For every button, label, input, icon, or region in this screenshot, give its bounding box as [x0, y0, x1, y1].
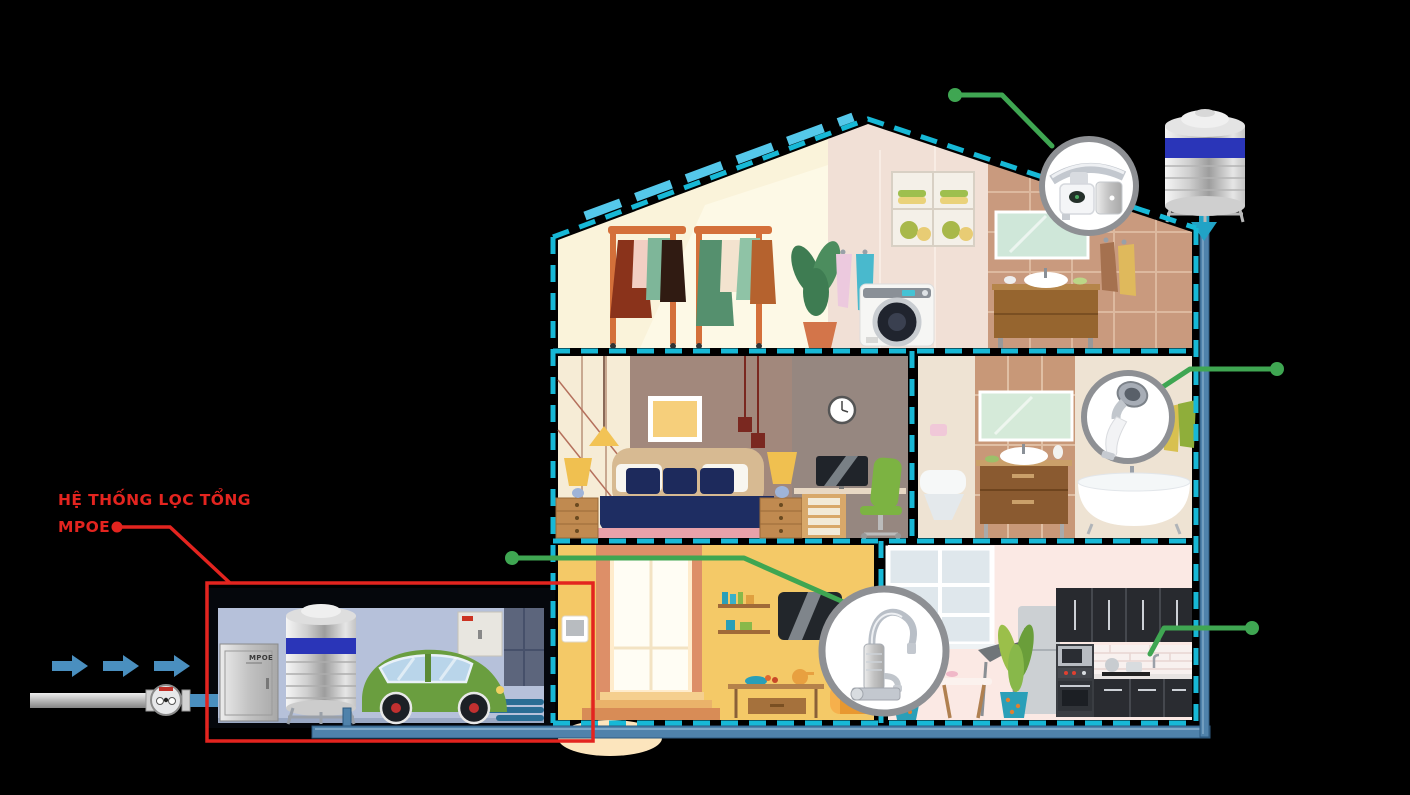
tap-filter-inset — [1042, 139, 1136, 233]
cabinet-label: MPOE — [249, 654, 273, 662]
inlet-pipe — [30, 693, 148, 708]
pot — [1126, 662, 1142, 672]
kitchen-cabinets — [1056, 588, 1192, 717]
car-headlight — [496, 686, 504, 694]
annotation-leader-line — [117, 527, 230, 583]
teapot — [792, 669, 808, 685]
rooftop-water-tank — [1165, 109, 1245, 222]
kettle — [1105, 658, 1119, 672]
toilet-paper — [930, 424, 947, 436]
garage-lockers — [504, 608, 544, 686]
bottom-pipe — [312, 726, 1210, 738]
callout-line-tap-filter — [955, 95, 1052, 146]
shower-filter-inset — [1084, 373, 1172, 465]
dining-table — [938, 678, 992, 685]
bathroom-vanity — [976, 444, 1072, 538]
riser-pipe — [1200, 205, 1209, 737]
diagram-canvas: MPOE — [0, 0, 1410, 795]
bedroom — [556, 356, 908, 539]
mpoe-filter-cabinet: MPOE — [220, 644, 278, 721]
annotation-line2: MPOE — [58, 518, 110, 536]
garage: MPOE — [205, 588, 555, 728]
water-inlet-arrows — [52, 655, 190, 677]
garage-wall-box — [458, 612, 502, 656]
mirror — [980, 392, 1072, 440]
tank-band — [1165, 138, 1245, 158]
towel — [1118, 244, 1136, 296]
water-inlet — [30, 655, 218, 715]
house-cutaway-diagram: MPOE — [0, 0, 1410, 795]
garage-water-tank — [286, 604, 356, 724]
annotation-line1: HỆ THỐNG LỌC TỔNG — [58, 487, 251, 509]
washing-machine — [860, 284, 934, 346]
bed — [598, 448, 776, 538]
towel-shelf — [892, 172, 974, 246]
towel — [1178, 400, 1196, 448]
thermostat — [562, 616, 588, 642]
inlet-connector — [190, 694, 218, 707]
cooktop — [1102, 672, 1150, 676]
water-meter — [151, 685, 181, 715]
ro-faucet-inset — [822, 589, 946, 713]
